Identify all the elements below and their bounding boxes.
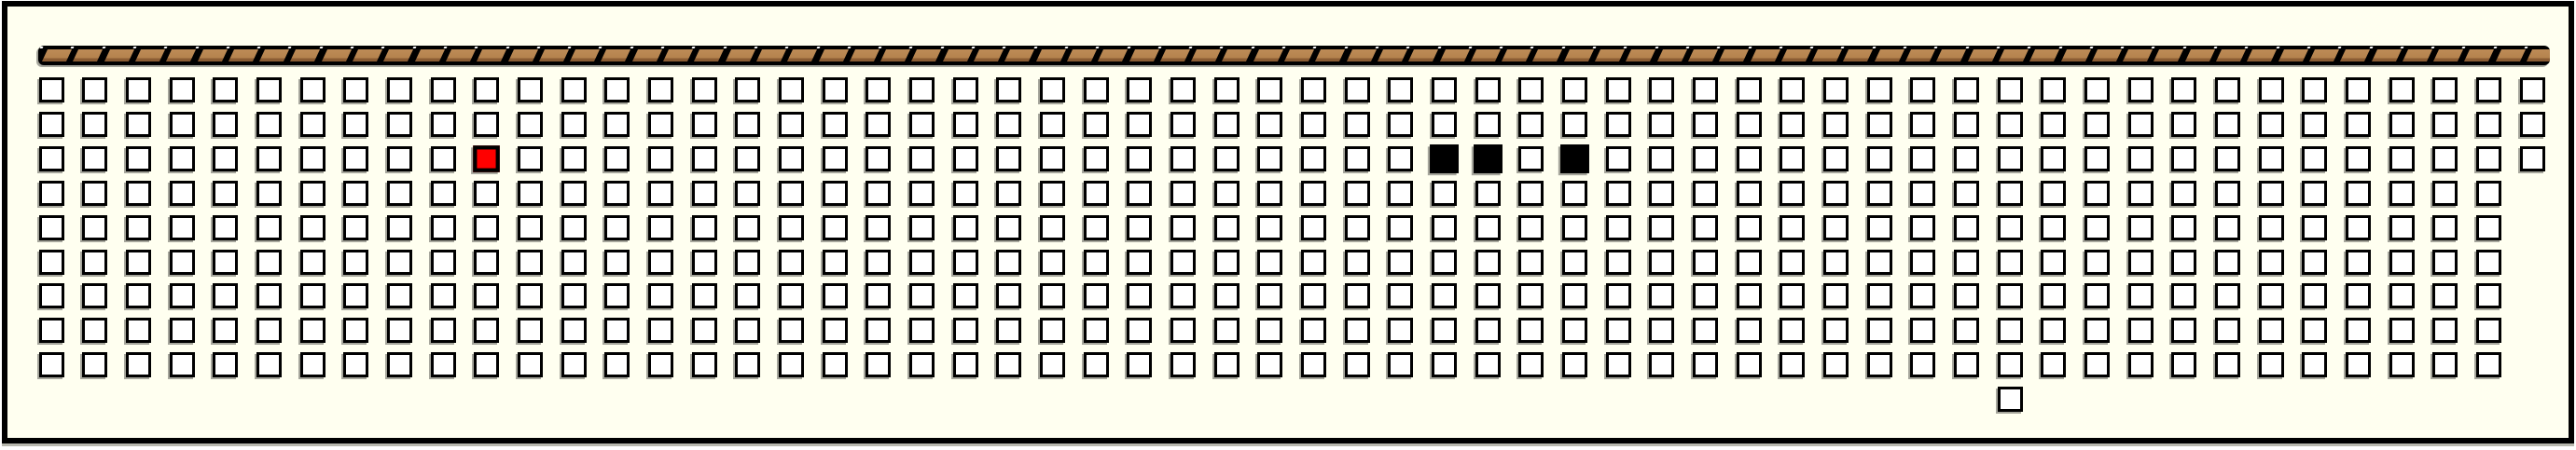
grid-cell[interactable]: [648, 146, 673, 171]
grid-cell[interactable]: [561, 77, 587, 102]
grid-cell[interactable]: [996, 181, 1021, 206]
grid-cell[interactable]: [387, 181, 412, 206]
grid-cell[interactable]: [996, 283, 1021, 308]
grid-cell[interactable]: [474, 318, 499, 343]
grid-cell[interactable]: [518, 215, 543, 240]
grid-cell[interactable]: [953, 181, 978, 206]
grid-cell[interactable]: [256, 283, 282, 308]
grid-cell[interactable]: [2346, 215, 2371, 240]
grid-cell[interactable]: [1606, 318, 1631, 343]
grid-cell[interactable]: [1475, 77, 1501, 102]
grid-cell[interactable]: [1475, 250, 1501, 275]
grid-cell[interactable]: [1388, 318, 1413, 343]
grid-cell[interactable]: [1606, 112, 1631, 137]
grid-cell[interactable]: [2171, 181, 2196, 206]
grid-cell[interactable]: [1345, 318, 1370, 343]
grid-cell[interactable]: [866, 77, 891, 102]
grid-cell[interactable]: [692, 181, 717, 206]
grid-cell[interactable]: [1823, 318, 1849, 343]
grid-cell[interactable]: [953, 146, 978, 171]
grid-cell[interactable]: [343, 181, 368, 206]
grid-cell[interactable]: [1737, 181, 1762, 206]
grid-cell[interactable]: [256, 146, 282, 171]
grid-cell[interactable]: [1606, 250, 1631, 275]
grid-cell[interactable]: [2302, 250, 2327, 275]
grid-cell[interactable]: [1214, 215, 1240, 240]
grid-cell[interactable]: [2171, 283, 2196, 308]
grid-cell[interactable]: [1649, 77, 1674, 102]
grid-cell[interactable]: [1562, 77, 1587, 102]
grid-cell[interactable]: [82, 352, 107, 377]
grid-cell[interactable]: [2432, 77, 2458, 102]
grid-cell[interactable]: [39, 318, 64, 343]
grid-cell[interactable]: [1257, 352, 1282, 377]
grid-cell[interactable]: [2128, 352, 2154, 377]
grid-cell[interactable]: [2302, 77, 2327, 102]
grid-cell[interactable]: [779, 318, 804, 343]
grid-cell[interactable]: [1910, 215, 1935, 240]
grid-cell[interactable]: [1518, 250, 1544, 275]
grid-cell[interactable]: [1867, 215, 1892, 240]
grid-cell[interactable]: [126, 352, 151, 377]
grid-cell[interactable]: [39, 283, 64, 308]
grid-cell[interactable]: [2041, 283, 2066, 308]
grid-cell[interactable]: [474, 112, 499, 137]
grid-cell[interactable]: [561, 215, 587, 240]
grid-cell[interactable]: [648, 318, 673, 343]
grid-cell[interactable]: [2215, 181, 2240, 206]
grid-cell[interactable]: [2259, 250, 2284, 275]
grid-cell[interactable]: [343, 112, 368, 137]
grid-cell[interactable]: [1998, 215, 2023, 240]
grid-cell[interactable]: [82, 250, 107, 275]
grid-cell[interactable]: [692, 215, 717, 240]
grid-cell[interactable]: [2346, 352, 2371, 377]
grid-cell[interactable]: [213, 318, 238, 343]
grid-cell[interactable]: [1040, 77, 1065, 102]
grid-cell[interactable]: [1432, 112, 1457, 137]
grid-cell[interactable]: [2476, 181, 2501, 206]
grid-cell[interactable]: [1432, 352, 1457, 377]
grid-cell[interactable]: [2084, 112, 2110, 137]
grid-cell[interactable]: [953, 283, 978, 308]
grid-cell[interactable]: [2389, 283, 2415, 308]
grid-cell[interactable]: [909, 215, 935, 240]
grid-cell[interactable]: [1998, 112, 2023, 137]
grid-cell[interactable]: [1170, 181, 1196, 206]
grid-cell[interactable]: [561, 112, 587, 137]
grid-cell[interactable]: [518, 181, 543, 206]
grid-cell[interactable]: [2389, 77, 2415, 102]
grid-cell[interactable]: [256, 181, 282, 206]
grid-cell[interactable]: [170, 215, 195, 240]
grid-cell[interactable]: [2084, 215, 2110, 240]
grid-cell[interactable]: [431, 250, 456, 275]
grid-cell[interactable]: [604, 112, 630, 137]
grid-cell[interactable]: [648, 112, 673, 137]
grid-cell[interactable]: [2041, 318, 2066, 343]
grid-cell[interactable]: [1345, 112, 1370, 137]
grid-cell[interactable]: [213, 283, 238, 308]
grid-cell[interactable]: [256, 318, 282, 343]
grid-cell[interactable]: [256, 112, 282, 137]
grid-cell[interactable]: [431, 77, 456, 102]
grid-cell[interactable]: [1040, 112, 1065, 137]
grid-cell[interactable]: [1040, 146, 1065, 171]
grid-cell[interactable]: [996, 112, 1021, 137]
grid-cell[interactable]: [1693, 181, 1718, 206]
grid-cell[interactable]: [823, 112, 848, 137]
grid-cell[interactable]: [735, 352, 760, 377]
grid-cell[interactable]: [1475, 112, 1501, 137]
grid-cell[interactable]: [648, 352, 673, 377]
grid-cell[interactable]: [1737, 215, 1762, 240]
grid-cell[interactable]: [2041, 352, 2066, 377]
grid-cell[interactable]: [1518, 283, 1544, 308]
grid-cell[interactable]: [1518, 215, 1544, 240]
grid-cell[interactable]: [1040, 318, 1065, 343]
grid-cell[interactable]: [1606, 352, 1631, 377]
grid-cell[interactable]: [1475, 318, 1501, 343]
grid-cell-extra[interactable]: [1998, 387, 2023, 412]
grid-cell[interactable]: [343, 77, 368, 102]
grid-cell[interactable]: [1823, 112, 1849, 137]
grid-cell[interactable]: [1910, 352, 1935, 377]
grid-cell[interactable]: [1518, 77, 1544, 102]
grid-cell[interactable]: [1127, 352, 1152, 377]
grid-cell[interactable]: [343, 318, 368, 343]
grid-cell[interactable]: [39, 146, 64, 171]
grid-cell[interactable]: [909, 352, 935, 377]
grid-cell[interactable]: [2302, 352, 2327, 377]
grid-cell[interactable]: [1649, 318, 1674, 343]
grid-cell[interactable]: [1127, 77, 1152, 102]
grid-cell[interactable]: [866, 283, 891, 308]
grid-cell[interactable]: [1040, 352, 1065, 377]
grid-cell[interactable]: [170, 77, 195, 102]
grid-cell[interactable]: [1301, 250, 1326, 275]
grid-cell[interactable]: [1910, 318, 1935, 343]
grid-cell[interactable]: [1432, 318, 1457, 343]
grid-cell[interactable]: [1084, 146, 1109, 171]
grid-cell[interactable]: [2084, 146, 2110, 171]
grid-cell[interactable]: [2302, 283, 2327, 308]
grid-cell[interactable]: [1998, 250, 2023, 275]
grid-cell[interactable]: [1432, 215, 1457, 240]
grid-cell[interactable]: [1257, 112, 1282, 137]
grid-cell[interactable]: [1780, 215, 1805, 240]
grid-cell[interactable]: [1301, 146, 1326, 171]
grid-cell[interactable]: [2432, 283, 2458, 308]
grid-cell[interactable]: [866, 181, 891, 206]
grid-cell[interactable]: [909, 250, 935, 275]
grid-cell[interactable]: [779, 181, 804, 206]
grid-cell[interactable]: [1214, 112, 1240, 137]
grid-cell[interactable]: [518, 146, 543, 171]
grid-cell[interactable]: [1388, 112, 1413, 137]
grid-cell[interactable]: [1127, 318, 1152, 343]
grid-cell[interactable]: [387, 215, 412, 240]
grid-cell[interactable]: [779, 283, 804, 308]
grid-cell[interactable]: [300, 352, 325, 377]
grid-cell[interactable]: [692, 112, 717, 137]
grid-cell[interactable]: [1780, 250, 1805, 275]
grid-cell[interactable]: [1170, 112, 1196, 137]
grid-cell[interactable]: [2215, 77, 2240, 102]
grid-cell[interactable]: [474, 352, 499, 377]
grid-cell[interactable]: [1301, 77, 1326, 102]
grid-cell[interactable]: [300, 77, 325, 102]
grid-cell[interactable]: [518, 283, 543, 308]
grid-cell[interactable]: [1954, 352, 1979, 377]
grid-cell[interactable]: [2389, 250, 2415, 275]
grid-cell[interactable]: [2520, 112, 2545, 137]
grid-cell[interactable]: [39, 250, 64, 275]
grid-cell[interactable]: [1954, 283, 1979, 308]
grid-cell[interactable]: [1040, 181, 1065, 206]
grid-cell[interactable]: [126, 146, 151, 171]
grid-cell[interactable]: [1693, 215, 1718, 240]
grid-cell[interactable]: [1040, 250, 1065, 275]
grid-cell[interactable]: [1649, 146, 1674, 171]
grid-cell[interactable]: [1040, 283, 1065, 308]
grid-cell[interactable]: [1867, 181, 1892, 206]
grid-cell[interactable]: [518, 318, 543, 343]
grid-cell[interactable]: [692, 352, 717, 377]
grid-cell[interactable]: [823, 283, 848, 308]
grid-cell[interactable]: [692, 318, 717, 343]
grid-cell[interactable]: [996, 318, 1021, 343]
grid-cell[interactable]: [82, 215, 107, 240]
grid-cell[interactable]: [909, 146, 935, 171]
grid-cell[interactable]: [1518, 318, 1544, 343]
grid-cell[interactable]: [823, 352, 848, 377]
grid-cell[interactable]: [1388, 77, 1413, 102]
grid-cell[interactable]: [2128, 77, 2154, 102]
grid-cell[interactable]: [2520, 146, 2545, 171]
grid-cell[interactable]: [996, 77, 1021, 102]
grid-cell[interactable]: [431, 215, 456, 240]
grid-cell[interactable]: [1867, 318, 1892, 343]
grid-cell[interactable]: [1737, 112, 1762, 137]
grid-cell[interactable]: [648, 181, 673, 206]
grid-cell[interactable]: [126, 77, 151, 102]
grid-cell[interactable]: [2215, 215, 2240, 240]
grid-cell[interactable]: [779, 352, 804, 377]
grid-cell[interactable]: [909, 181, 935, 206]
grid-cell[interactable]: [170, 181, 195, 206]
grid-cell[interactable]: [1345, 146, 1370, 171]
grid-cell[interactable]: [126, 318, 151, 343]
grid-cell[interactable]: [2215, 112, 2240, 137]
grid-cell[interactable]: [1562, 112, 1587, 137]
grid-cell[interactable]: [1388, 215, 1413, 240]
grid-cell[interactable]: [1780, 352, 1805, 377]
grid-cell[interactable]: [2432, 352, 2458, 377]
grid-cell[interactable]: [1693, 112, 1718, 137]
grid-cell[interactable]: [1432, 77, 1457, 102]
grid-cell[interactable]: [1301, 352, 1326, 377]
grid-cell[interactable]: [2432, 318, 2458, 343]
grid-cell[interactable]: [2259, 112, 2284, 137]
grid-cell[interactable]: [1345, 215, 1370, 240]
grid-cell[interactable]: [170, 250, 195, 275]
grid-cell[interactable]: [1257, 283, 1282, 308]
grid-cell[interactable]: [39, 215, 64, 240]
grid-cell[interactable]: [779, 146, 804, 171]
grid-cell[interactable]: [1084, 352, 1109, 377]
grid-cell[interactable]: [866, 352, 891, 377]
grid-cell[interactable]: [1432, 181, 1457, 206]
grid-cell[interactable]: [2084, 250, 2110, 275]
grid-cell[interactable]: [300, 283, 325, 308]
grid-cell[interactable]: [1475, 352, 1501, 377]
grid-cell[interactable]: [1562, 318, 1587, 343]
grid-cell[interactable]: [1170, 77, 1196, 102]
grid-cell[interactable]: [518, 250, 543, 275]
grid-cell-black[interactable]: [1430, 144, 1459, 173]
grid-cell[interactable]: [2084, 283, 2110, 308]
grid-cell[interactable]: [518, 77, 543, 102]
grid-cell[interactable]: [1170, 352, 1196, 377]
grid-cell[interactable]: [2171, 352, 2196, 377]
grid-cell[interactable]: [779, 250, 804, 275]
grid-cell[interactable]: [1649, 112, 1674, 137]
grid-cell[interactable]: [1737, 250, 1762, 275]
grid-cell[interactable]: [1780, 283, 1805, 308]
grid-cell[interactable]: [2302, 215, 2327, 240]
grid-cell[interactable]: [2476, 112, 2501, 137]
grid-cell[interactable]: [126, 283, 151, 308]
grid-cell[interactable]: [823, 215, 848, 240]
grid-cell[interactable]: [1954, 181, 1979, 206]
grid-cell[interactable]: [1693, 283, 1718, 308]
grid-cell[interactable]: [1257, 181, 1282, 206]
grid-cell[interactable]: [1954, 250, 1979, 275]
grid-cell[interactable]: [692, 146, 717, 171]
grid-cell[interactable]: [1910, 146, 1935, 171]
grid-cell[interactable]: [518, 112, 543, 137]
grid-cell[interactable]: [1257, 215, 1282, 240]
grid-cell[interactable]: [1910, 112, 1935, 137]
grid-cell[interactable]: [1910, 77, 1935, 102]
grid-cell[interactable]: [2128, 215, 2154, 240]
grid-cell[interactable]: [1823, 77, 1849, 102]
grid-cell[interactable]: [2128, 112, 2154, 137]
grid-cell[interactable]: [431, 181, 456, 206]
grid-cell[interactable]: [1345, 352, 1370, 377]
grid-cell[interactable]: [1780, 112, 1805, 137]
grid-cell[interactable]: [561, 146, 587, 171]
grid-cell[interactable]: [300, 318, 325, 343]
grid-cell[interactable]: [1214, 146, 1240, 171]
grid-cell[interactable]: [2171, 250, 2196, 275]
grid-cell[interactable]: [1518, 112, 1544, 137]
grid-cell[interactable]: [1910, 181, 1935, 206]
grid-cell[interactable]: [1301, 181, 1326, 206]
grid-cell[interactable]: [1345, 283, 1370, 308]
grid-cell[interactable]: [39, 77, 64, 102]
grid-cell[interactable]: [1127, 283, 1152, 308]
grid-cell[interactable]: [2128, 318, 2154, 343]
grid-cell[interactable]: [2215, 283, 2240, 308]
grid-cell[interactable]: [2346, 181, 2371, 206]
grid-cell[interactable]: [604, 181, 630, 206]
grid-cell-black[interactable]: [1474, 144, 1503, 173]
grid-cell[interactable]: [909, 112, 935, 137]
grid-cell[interactable]: [1562, 352, 1587, 377]
grid-cell[interactable]: [953, 77, 978, 102]
grid-cell[interactable]: [1998, 352, 2023, 377]
grid-cell[interactable]: [387, 250, 412, 275]
grid-cell[interactable]: [2259, 318, 2284, 343]
grid-cell[interactable]: [2432, 215, 2458, 240]
grid-cell[interactable]: [735, 215, 760, 240]
grid-cell[interactable]: [604, 250, 630, 275]
grid-cell[interactable]: [2041, 250, 2066, 275]
grid-cell[interactable]: [1737, 283, 1762, 308]
grid-cell[interactable]: [170, 318, 195, 343]
grid-cell[interactable]: [1170, 318, 1196, 343]
grid-cell[interactable]: [561, 318, 587, 343]
grid-cell[interactable]: [387, 112, 412, 137]
grid-cell[interactable]: [648, 215, 673, 240]
grid-cell[interactable]: [953, 112, 978, 137]
grid-cell[interactable]: [1954, 215, 1979, 240]
grid-cell[interactable]: [170, 283, 195, 308]
grid-cell[interactable]: [82, 318, 107, 343]
grid-cell[interactable]: [823, 181, 848, 206]
grid-cell[interactable]: [1214, 352, 1240, 377]
grid-cell[interactable]: [213, 352, 238, 377]
grid-cell[interactable]: [300, 215, 325, 240]
grid-cell[interactable]: [1214, 77, 1240, 102]
grid-cell[interactable]: [1127, 112, 1152, 137]
grid-cell[interactable]: [866, 215, 891, 240]
grid-cell[interactable]: [2128, 181, 2154, 206]
grid-cell[interactable]: [1562, 181, 1587, 206]
grid-cell[interactable]: [1475, 283, 1501, 308]
grid-cell[interactable]: [2041, 146, 2066, 171]
grid-cell[interactable]: [1649, 181, 1674, 206]
grid-cell[interactable]: [39, 112, 64, 137]
grid-cell[interactable]: [779, 215, 804, 240]
grid-cell[interactable]: [2346, 112, 2371, 137]
grid-cell[interactable]: [2259, 283, 2284, 308]
grid-cell[interactable]: [1823, 352, 1849, 377]
grid-cell[interactable]: [1606, 283, 1631, 308]
grid-cell[interactable]: [170, 112, 195, 137]
grid-cell[interactable]: [82, 283, 107, 308]
grid-cell[interactable]: [2084, 352, 2110, 377]
grid-cell[interactable]: [953, 215, 978, 240]
grid-cell[interactable]: [2346, 318, 2371, 343]
grid-cell[interactable]: [909, 318, 935, 343]
grid-cell[interactable]: [1823, 283, 1849, 308]
grid-cell[interactable]: [735, 77, 760, 102]
grid-cell[interactable]: [1649, 352, 1674, 377]
grid-cell[interactable]: [1693, 146, 1718, 171]
grid-cell[interactable]: [1388, 283, 1413, 308]
grid-cell[interactable]: [2215, 250, 2240, 275]
grid-cell[interactable]: [648, 250, 673, 275]
grid-cell[interactable]: [1649, 283, 1674, 308]
grid-cell[interactable]: [300, 181, 325, 206]
grid-cell[interactable]: [2476, 215, 2501, 240]
grid-cell[interactable]: [1518, 181, 1544, 206]
grid-cell[interactable]: [474, 215, 499, 240]
grid-cell[interactable]: [431, 352, 456, 377]
